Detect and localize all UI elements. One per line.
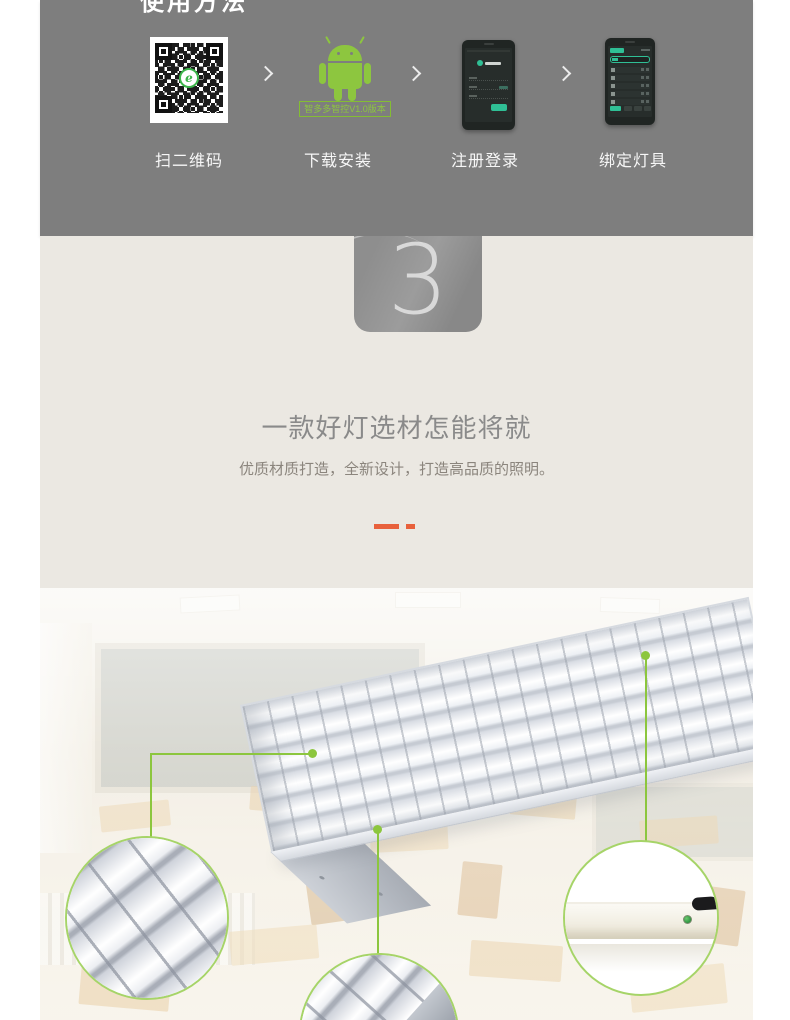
phone-speaker	[625, 41, 635, 43]
feature-subheading: 优质材质打造，全新设计，打造高品质的照明。	[40, 458, 753, 479]
callout-end-profile-detail	[563, 840, 719, 996]
lamp-connector	[692, 896, 719, 911]
phone-login-screen-icon	[462, 40, 515, 130]
qr-finder-icon	[155, 43, 172, 60]
connector-dot	[641, 651, 650, 660]
feature-heading: 一款好灯选材怎能将就	[40, 408, 753, 445]
search-bar-mock	[610, 56, 650, 63]
connector-line	[151, 753, 312, 755]
connector-line	[377, 831, 379, 955]
login-screen	[465, 48, 512, 122]
step-label-download-install: 下载安装	[293, 147, 383, 171]
connector-line	[645, 656, 647, 842]
app-logo-icon	[477, 60, 483, 66]
chevron-right-icon	[406, 66, 422, 82]
product-detail-page: 使用方法 e 智多多智控V1.0版本	[0, 0, 790, 1020]
android-robot-icon	[319, 40, 371, 102]
step-number: 3	[354, 236, 482, 330]
qr-finder-icon	[155, 96, 172, 113]
step-label-register-login: 注册登录	[440, 147, 530, 171]
step-label-scan-qr: 扫二维码	[144, 147, 234, 171]
phone-device-list-screen-icon	[605, 38, 655, 125]
phone-speaker	[484, 43, 494, 45]
step-number-badge: 3	[354, 236, 482, 332]
grille-texture	[65, 836, 229, 1000]
login-button-mock	[491, 104, 507, 111]
app-version-badge: 智多多智控V1.0版本	[299, 101, 391, 117]
qr-code-icon: e	[150, 37, 228, 123]
callout-grille-detail-bottom	[299, 953, 459, 1020]
qr-finder-icon	[206, 43, 223, 60]
connector-dot	[373, 825, 382, 834]
callout-grille-detail-left	[65, 836, 229, 1000]
divider-dash-long	[374, 524, 399, 529]
chevron-right-icon	[258, 66, 274, 82]
brand-logo-icon: e	[179, 68, 199, 88]
classroom-product-photo	[40, 588, 753, 1020]
usage-steps-section: 使用方法 e 智多多智控V1.0版本	[40, 0, 753, 236]
lamp-indicator-led	[683, 915, 692, 924]
connector-dot	[308, 749, 317, 758]
device-list-screen	[608, 46, 652, 117]
connector-line	[150, 753, 152, 838]
accent-divider	[40, 524, 753, 530]
feature-section: 3 一款好灯选材怎能将就 优质材质打造，全新设计，打造高品质的照明。	[40, 236, 753, 588]
section-title-partial: 使用方法	[140, 0, 248, 17]
divider-dash-short	[406, 524, 415, 529]
step-label-bind-lamp: 绑定灯具	[588, 147, 678, 171]
lamp-reflection	[569, 944, 719, 972]
chevron-right-icon	[556, 66, 572, 82]
content-column: 使用方法 e 智多多智控V1.0版本	[40, 0, 753, 1020]
